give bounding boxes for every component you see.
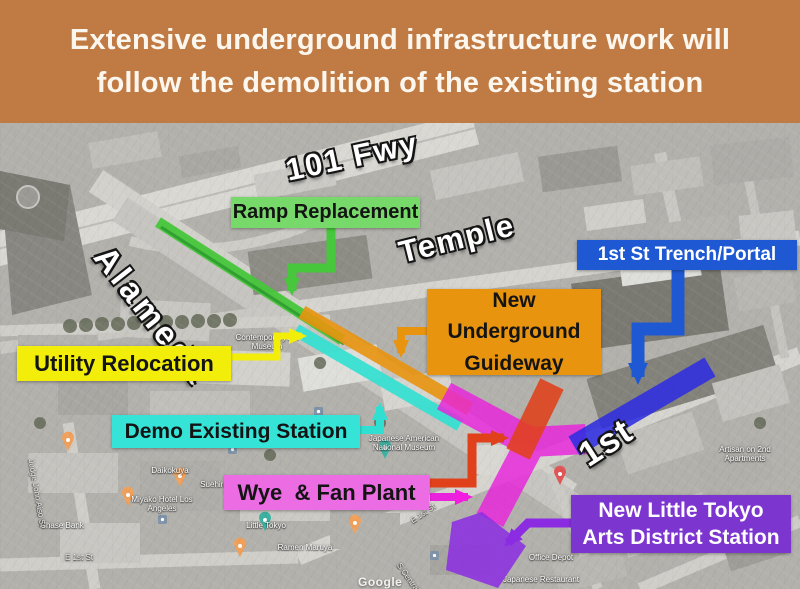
title-line-1: Extensive underground infrastructure wor… [70, 19, 730, 61]
slide: Extensive underground infrastructure wor… [0, 0, 800, 589]
ramp-replacement-leader [292, 228, 331, 291]
callout-ramp-replacement: Ramp Replacement [231, 197, 420, 228]
new-underground-guideway-leader [401, 331, 427, 353]
fan-plant-leader [430, 438, 504, 483]
first-st-trench-leader [638, 269, 678, 377]
wye-overlay [444, 396, 586, 520]
demo-existing-station-leader [358, 407, 380, 430]
utility-relocation-leader [231, 336, 302, 357]
little-tokyo-station-overlay [446, 512, 526, 588]
callout-wye-fan-plant: Wye & Fan Plant [224, 475, 429, 510]
callout-1st-st-trench-portal: 1st St Trench/Portal [577, 240, 797, 270]
callout-new-little-tokyo-arts-district-station: New Little Tokyo Arts District Station [571, 495, 791, 553]
callout-new-underground-guideway: New Underground Guideway [427, 289, 601, 375]
callout-utility-relocation: Utility Relocation [17, 346, 231, 381]
title-banner: Extensive underground infrastructure wor… [0, 0, 800, 123]
callout-demo-existing-station: Demo Existing Station [112, 415, 360, 448]
google-watermark: Google [358, 575, 402, 589]
title-line-2: follow the demolition of the existing st… [97, 62, 704, 104]
aerial-map: Japanese American National Museum Daikok… [0, 123, 800, 589]
